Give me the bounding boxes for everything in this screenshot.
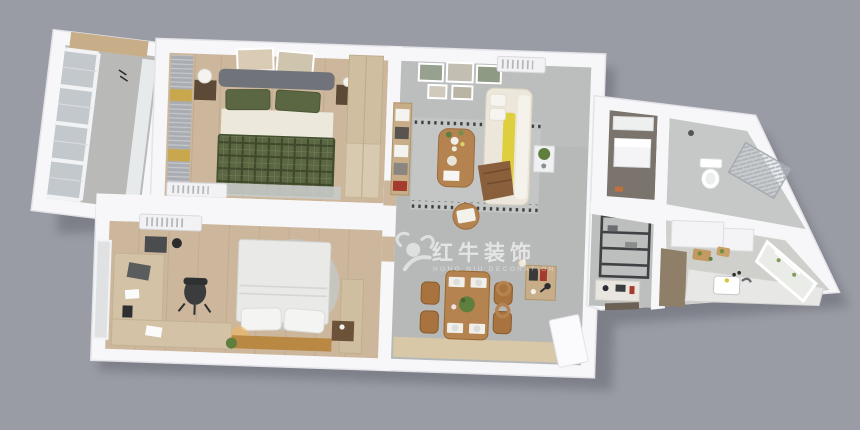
chair <box>421 282 440 305</box>
red-book <box>629 286 634 294</box>
bed-green <box>217 88 337 197</box>
second-bedroom <box>93 212 383 358</box>
air-conditioner <box>167 182 227 198</box>
watermark-brand-zh: 红牛装饰 <box>432 241 536 265</box>
pillow <box>490 94 506 107</box>
hallway <box>589 212 654 312</box>
books <box>443 170 459 181</box>
master-bedroom <box>165 45 389 204</box>
nightstand <box>332 321 355 342</box>
sphere-lamp <box>197 69 211 83</box>
coffee-table <box>437 128 475 187</box>
white-cabinet-box <box>723 228 754 251</box>
side-table <box>534 146 555 173</box>
floorplan-scene: 红牛装饰 HONG NIU DECORATION <box>0 0 860 430</box>
shelf-box <box>145 236 168 253</box>
small-item <box>615 186 623 191</box>
camera <box>122 305 132 317</box>
floorplan-3d-render: 红牛装饰 HONG NIU DECORATION <box>0 0 860 430</box>
entry-door-threshold <box>605 302 639 310</box>
pillow <box>275 90 320 113</box>
air-conditioner <box>497 56 545 73</box>
pillow <box>241 308 281 331</box>
wardrobe <box>339 279 364 354</box>
laptop <box>615 285 625 292</box>
wall-cabinet <box>613 116 653 130</box>
round-stool <box>453 203 480 230</box>
wood-pantry <box>659 248 687 307</box>
console-table <box>595 280 640 302</box>
utility-room <box>607 110 658 200</box>
main-block <box>91 36 606 377</box>
white-cabinet-box <box>671 220 724 248</box>
pillow <box>283 308 325 333</box>
door-opening <box>381 236 395 261</box>
watermark-brand-en: HONG NIU DECORATION <box>433 266 556 273</box>
red-books <box>393 181 407 191</box>
air-conditioner <box>139 214 201 231</box>
chair <box>420 311 439 334</box>
papers <box>125 289 140 299</box>
counter <box>615 138 651 147</box>
pillow <box>226 90 270 110</box>
shelf-unit <box>391 103 412 196</box>
window-blind <box>93 240 110 338</box>
pillow <box>489 108 505 121</box>
